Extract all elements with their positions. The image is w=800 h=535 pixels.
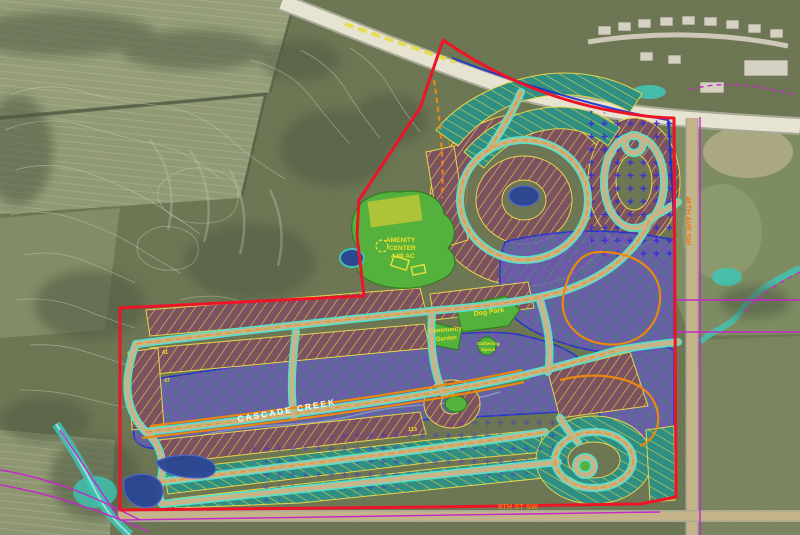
gathering-space-label-line2: Space xyxy=(481,347,495,353)
9th-st-label: 9TH ST SW xyxy=(498,502,539,511)
site-plan-map: CASCADE CREEK Dog Park Community Garden … xyxy=(0,0,800,535)
block-number-41: 41 xyxy=(162,350,168,356)
block-number-113: 113 xyxy=(408,427,417,433)
block-number-47: 47 xyxy=(164,378,170,384)
46th-ave-label: 46TH AVE SW xyxy=(684,196,693,246)
aerial-development-plan: CASCADE CREEK Dog Park Community Garden … xyxy=(0,0,800,535)
gathering-space-label-line1: Gathering xyxy=(477,341,500,347)
amenity-center-label-line1: AMENITY xyxy=(386,237,416,244)
amenity-center-label-line2: CENTER xyxy=(389,245,416,252)
amenity-center-label-line3: 4.88 AC xyxy=(391,253,415,260)
